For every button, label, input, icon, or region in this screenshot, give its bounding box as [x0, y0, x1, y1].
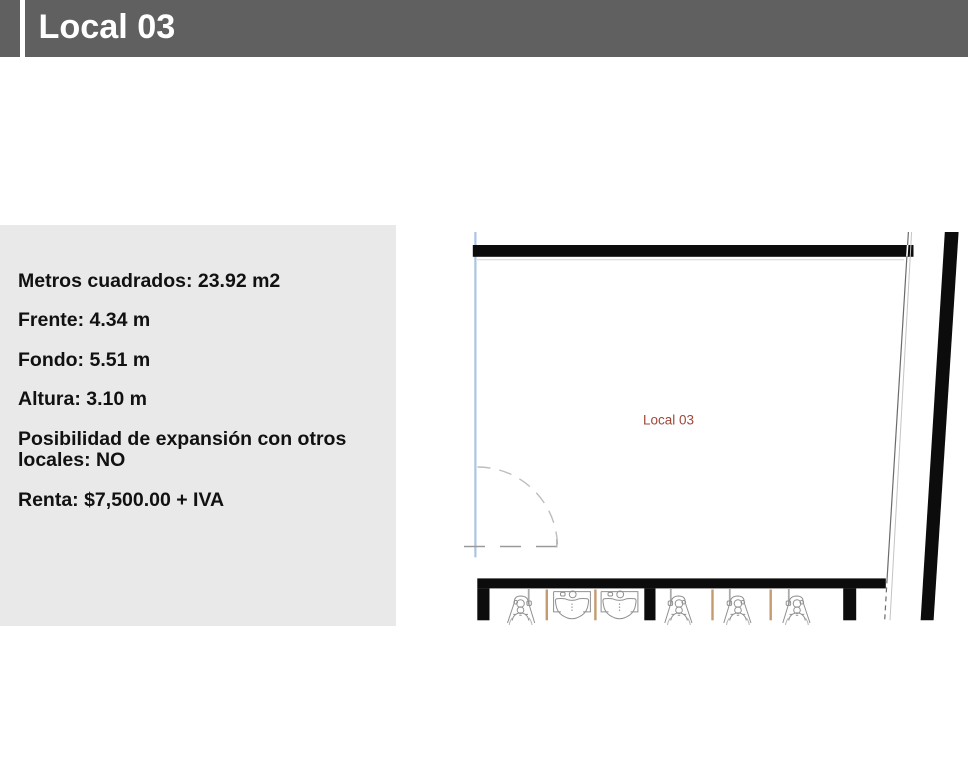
- svg-text:Local 03: Local 03: [643, 413, 694, 428]
